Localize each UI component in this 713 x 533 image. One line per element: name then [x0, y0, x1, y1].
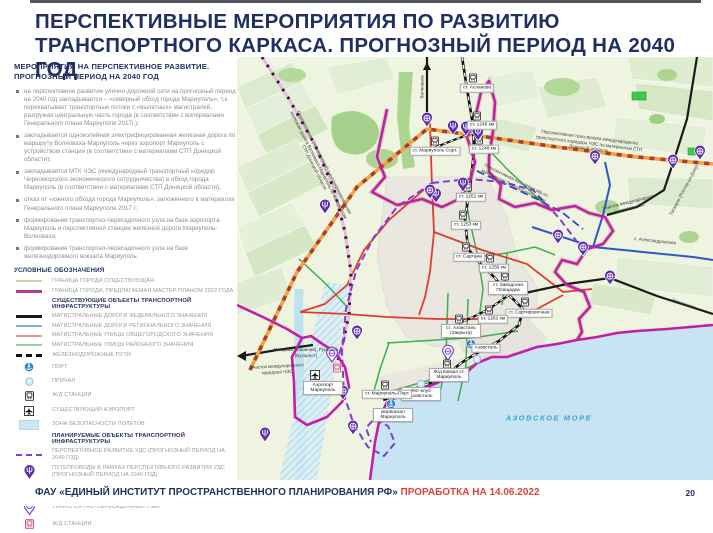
station-label: ст. 1248 км [469, 145, 499, 154]
city-street-swatch [14, 335, 44, 337]
legend-item: ПУТЕПРОВОДЫ В РАМКАХ ПЕРСПЕКТИВНОГО РАЗВ… [14, 465, 237, 480]
legend-item: ЗОНА БЕЗОПАСНОСТИ ПОЛЕТОВ [14, 420, 237, 430]
railway-swatch [14, 354, 44, 357]
legend-section-existing: СУЩЕСТВУЮЩИЕ ОБЪЕКТЫ ТРАНСПОРТНОЙ ИНФРАС… [52, 298, 237, 310]
list-item: формирование транспортно-пересадочного у… [14, 217, 237, 241]
station-label: ст. 1253 км [451, 221, 481, 230]
direction-volnovakha: Волноваха [419, 75, 425, 98]
legend-item: МАГИСТРАЛЬНЫЕ УЛИЦЫ ОБЩЕГОРОДСКОГО ЗНАЧЕ… [14, 332, 237, 339]
footer-org: ФАУ «ЕДИНЫЙ ИНСТИТУТ ПРОСТРАНСТВЕННОГО П… [35, 487, 398, 498]
planned-uds-swatch [14, 454, 44, 456]
station-label: ст. Сортировочная [505, 309, 552, 318]
sea-label: АЗОВСКОЕ МОРЕ [506, 414, 593, 423]
legend-item: МАГИСТРАЛЬНЫЕ ДОРОГИ РЕГИОНАЛЬНОГО ЗНАЧЕ… [14, 323, 237, 330]
panel-subtitle: МЕРОПРИЯТИЯ НА ПЕРСПЕКТИВНОЕ РАЗВИТИЕ. П… [14, 62, 237, 82]
existing-boundary-swatch [14, 280, 44, 282]
list-item: на перспективное развитие улично-дорожно… [14, 88, 237, 128]
legend-item: ПЕРСПЕКТИВНОЕ РАЗВИТИЕ УДС (ПРОГНОЗНЫЙ П… [14, 448, 237, 462]
pier-icon [14, 376, 44, 387]
planned-station-icon [14, 518, 44, 530]
list-item: закладывается МТК ЧЭС (международный тра… [14, 168, 237, 192]
legend-item: Ж/Д СТАНЦИИ [14, 518, 237, 530]
flight-safety-zone-swatch [14, 420, 44, 430]
direction-moldova: Молдова (Кишинев), Румыния (Бухарест) [273, 347, 339, 358]
left-panel: МЕРОПРИЯТИЯ НА ПЕРСПЕКТИВНОЕ РАЗВИТИЕ. П… [14, 62, 237, 533]
masterplan-boundary-swatch [14, 290, 44, 293]
airport-label: Аэропорт Мариуполь [303, 381, 343, 395]
page-number: 20 [686, 488, 695, 498]
list-item: отказ от «южного обхода города Мариуполь… [14, 196, 237, 212]
station-label: ст. 1246 км [467, 121, 497, 130]
legend-item: ПРИЧАЛ [14, 376, 237, 387]
station-label: ст. Мариуполь-Сорт. [410, 147, 461, 156]
top-divider-bar [30, 0, 701, 3]
district-street-swatch [14, 344, 44, 346]
station-label: ст. 1251 км [456, 193, 486, 202]
port-icon [14, 361, 44, 373]
airport-icon [14, 405, 44, 417]
station-label: ст. Азовсталь (Закрыта) [441, 324, 481, 338]
list-item: формирование транспортно-пересадочного у… [14, 245, 237, 261]
legend-section-planned: ПЛАНИРУЕМЫЕ ОБЪЕКТЫ ТРАНСПОРТНОЙ ИНФРАСТ… [52, 433, 237, 445]
rail-station-icon [14, 390, 44, 402]
station-label: ст. Сартана [453, 253, 485, 262]
station-label: ст. Мариуполь-Порт [362, 390, 412, 399]
city-map: Перспективная (планируемая) электрифицир… [237, 57, 713, 480]
station-label: ст. 1261 км [478, 315, 508, 324]
legend-item: ЖЕЛЕЗНОДОРОЖНЫЕ ПУТИ [14, 352, 237, 359]
legend-item: СУЩЕСТВУЮЩИЙ АЭРОПОРТ [14, 405, 237, 417]
overpass-pin-icon [14, 465, 44, 480]
federal-road-swatch [14, 315, 44, 318]
regional-road-swatch [14, 325, 44, 327]
legend-item: МАГИСТРАЛЬНЫЕ ДОРОГИ ФЕДЕРАЛЬНОГО ЗНАЧЕН… [14, 313, 237, 320]
legend-item: Ж/Д СТАНЦИИ [14, 390, 237, 402]
station-label: ст. Заводская Площадка [488, 281, 528, 295]
footer-date-note: ПРОРАБОТКА НА 14.06.2022 [401, 487, 540, 498]
azovstal-port-label: Азовсталь [471, 344, 500, 353]
legend-item: ГРАНИЦА ГОРОДА, ПРЕДЛАГАЕМАЯ МАСТЕР-ПЛАН… [14, 288, 237, 295]
footer: ФАУ «ЕДИНЫЙ ИНСТИТУТ ПРОСТРАНСТВЕННОГО П… [0, 480, 713, 506]
measures-list: на перспективное развитие улично-дорожно… [14, 88, 237, 261]
legend-item: ПОРТ [14, 361, 237, 373]
list-item: закладывается одноколейная электрифициро… [14, 132, 237, 164]
rail-terminal-label: Ж/д вокзал ст. Мариуполь [429, 368, 469, 382]
station-label: ст. 1256 км [479, 264, 509, 273]
station-label: ст. Асланово [460, 84, 494, 93]
footer-text: ФАУ «ЕДИНЫЙ ИНСТИТУТ ПРОСТРАНСТВЕННОГО П… [35, 487, 540, 498]
legend-item: ГРАНИЦА ГОРОДА СУЩЕСТВУЮЩАЯ [14, 278, 237, 285]
sea-terminal-label: морвокзал Мариуполь [373, 408, 413, 422]
legend-title: УСЛОВНЫЕ ОБОЗНАЧЕНИЯ [14, 267, 237, 274]
legend-item: МАГИСТРАЛЬНЫЕ УЛИЦЫ РАЙОННОГО ЗНАЧЕНИЯ [14, 342, 237, 349]
